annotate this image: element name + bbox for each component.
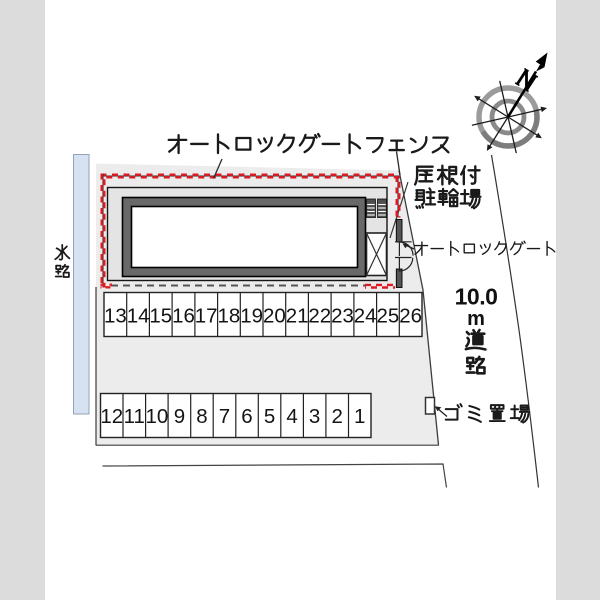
svg-text:12: 12	[100, 405, 123, 428]
svg-text:10.0: 10.0	[455, 284, 498, 310]
svg-text:14: 14	[127, 305, 150, 328]
svg-text:5: 5	[264, 405, 275, 428]
svg-text:2: 2	[331, 405, 342, 428]
svg-text:7: 7	[219, 405, 230, 428]
svg-text:17: 17	[195, 305, 218, 328]
svg-text:22: 22	[308, 305, 331, 328]
svg-text:1: 1	[354, 405, 365, 428]
svg-text:24: 24	[354, 305, 377, 328]
svg-text:11: 11	[124, 405, 145, 428]
svg-text:13: 13	[104, 305, 127, 328]
svg-text:10: 10	[145, 405, 168, 428]
svg-text:9: 9	[174, 405, 185, 428]
svg-text:23: 23	[331, 305, 354, 328]
svg-text:21: 21	[286, 305, 309, 328]
svg-text:16: 16	[172, 305, 195, 328]
svg-text:19: 19	[240, 305, 263, 328]
svg-text:18: 18	[217, 305, 240, 328]
svg-text:4: 4	[286, 405, 297, 428]
svg-text:25: 25	[376, 305, 399, 328]
svg-text:15: 15	[149, 305, 172, 328]
svg-text:6: 6	[241, 405, 252, 428]
svg-text:8: 8	[196, 405, 207, 428]
svg-text:20: 20	[263, 305, 286, 328]
svg-text:m: m	[467, 308, 485, 330]
svg-text:3: 3	[309, 405, 320, 428]
svg-text:26: 26	[399, 305, 422, 328]
